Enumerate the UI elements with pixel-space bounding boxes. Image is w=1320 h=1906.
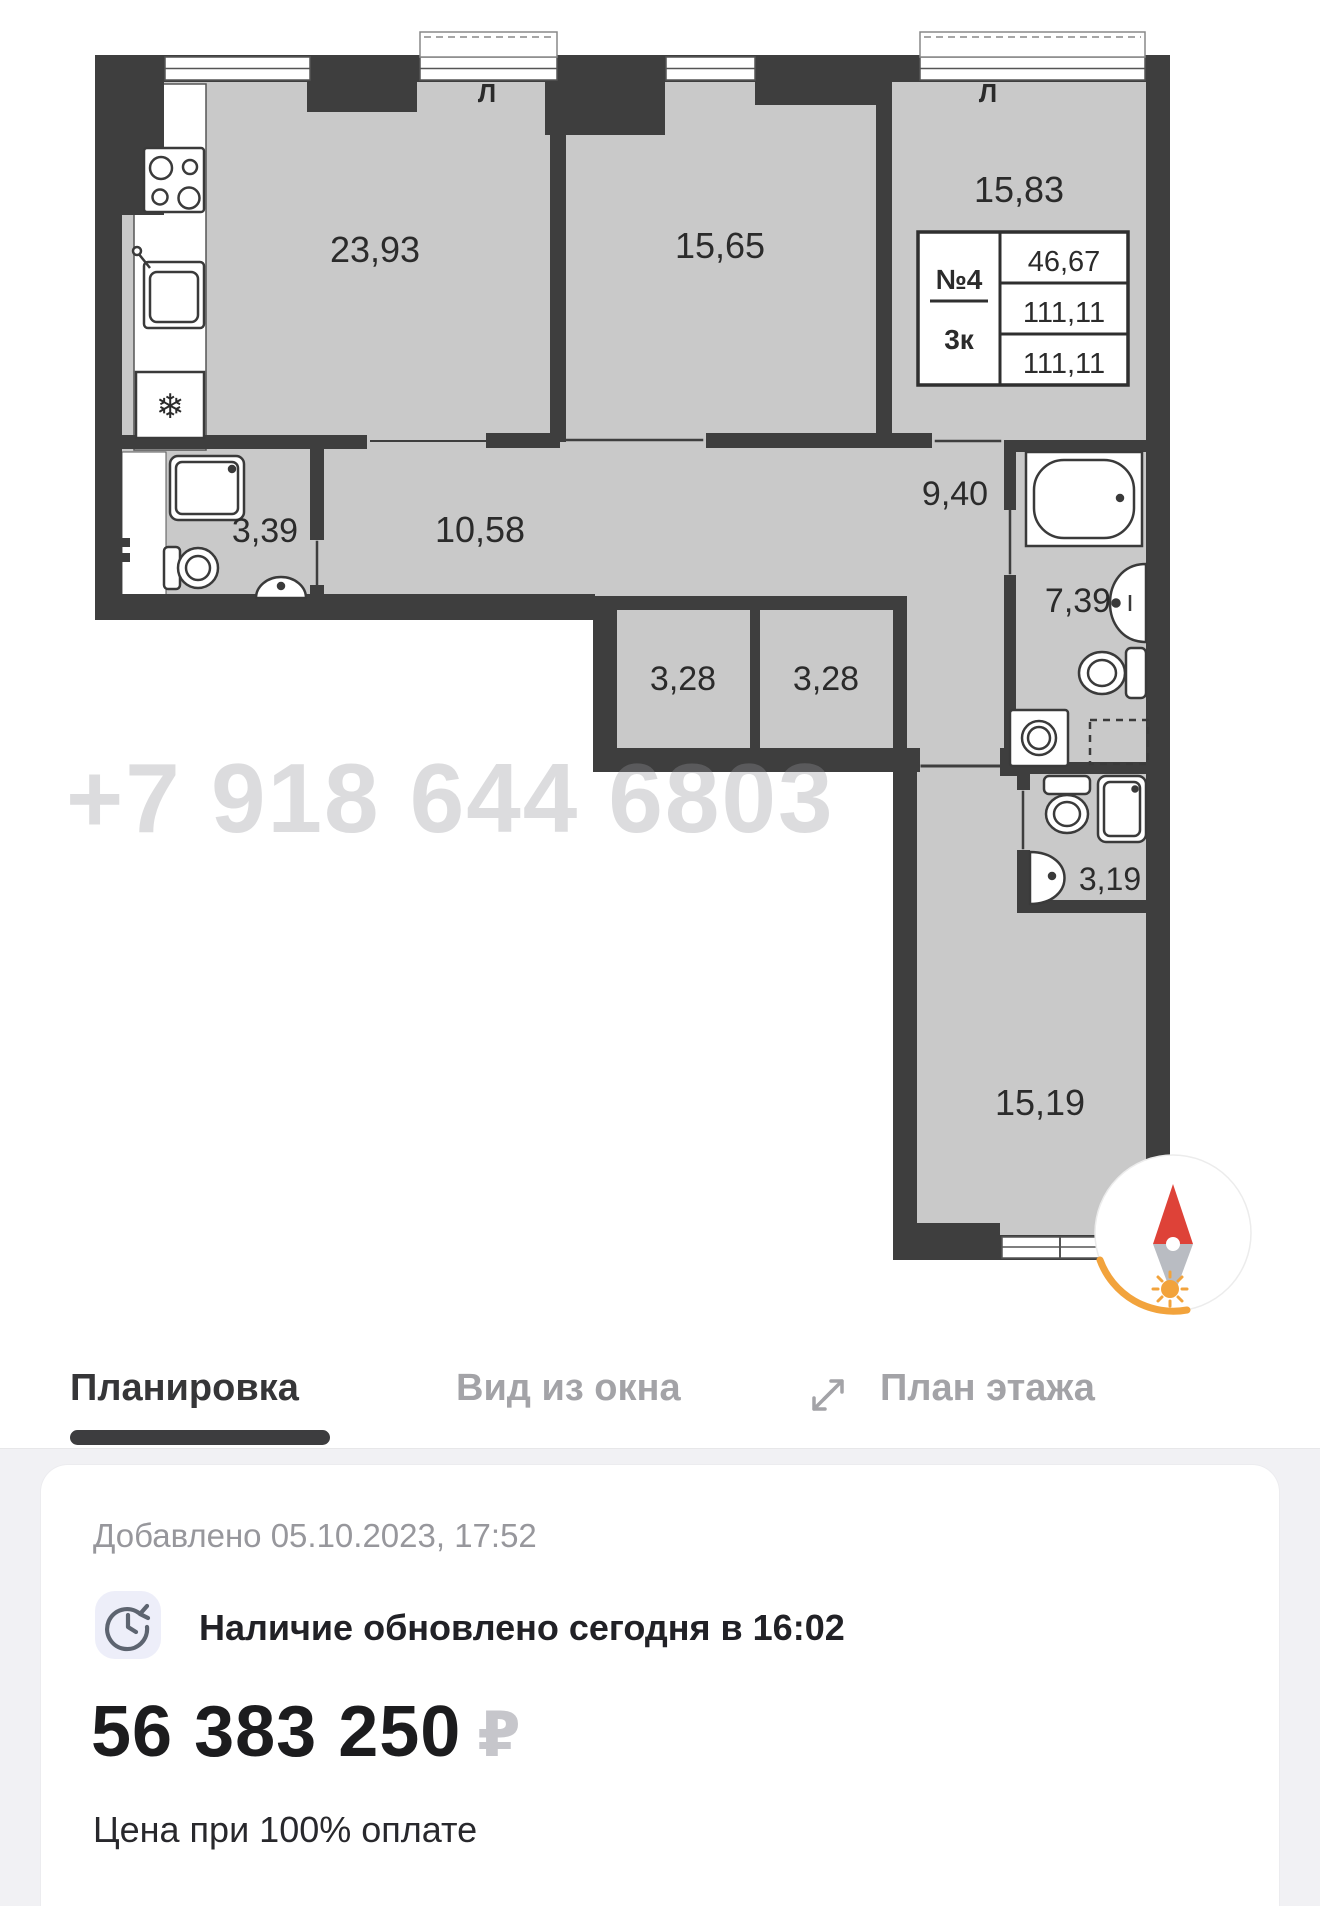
shower-icon xyxy=(170,456,244,520)
availability-updated-text: Наличие обновлено сегодня в 16:02 xyxy=(199,1607,845,1649)
room-label-hall: 10,58 xyxy=(435,509,525,550)
tab-floor-layout[interactable]: План этажа xyxy=(880,1367,1095,1410)
room-label-bedroom-mid: 15,65 xyxy=(675,225,765,266)
tab-bar: Планировка Вид из окна План этажа xyxy=(0,1345,1320,1449)
price: 56 383 250₽ xyxy=(91,1691,522,1773)
room-label-living: 23,93 xyxy=(330,229,420,270)
apartment-info-box: №4 3к 46,67 111,11 111,11 xyxy=(918,232,1128,385)
price-value: 56 383 250 xyxy=(91,1692,461,1772)
apartment-number: №4 xyxy=(936,264,983,295)
area-total: 111,11 xyxy=(1023,297,1105,329)
utility-shaft-strip xyxy=(122,452,166,598)
room-label-bath-small: 3,39 xyxy=(232,512,298,550)
area-total-2: 111,11 xyxy=(1023,348,1105,380)
active-tab-indicator xyxy=(70,1430,330,1445)
watermark-phone: +7 918 644 6803 xyxy=(66,742,1266,855)
floor-plan: Л Л xyxy=(0,0,1320,1350)
clock-refresh-icon xyxy=(95,1591,161,1659)
room-label-closet-left: 3,28 xyxy=(650,660,716,698)
room-label-corridor: 9,40 xyxy=(922,475,988,513)
freezer-snowflake-icon: ❄ xyxy=(156,388,185,426)
room-label-bathroom-main: 7,39 xyxy=(1045,582,1111,620)
details-card: Добавлено 05.10.2023, 17:52 Наличие обно… xyxy=(40,1464,1280,1906)
compass-icon xyxy=(1095,1155,1251,1311)
room-label-bedroom-lower: 15,19 xyxy=(995,1082,1085,1123)
added-date-text: Добавлено 05.10.2023, 17:52 xyxy=(93,1517,537,1555)
sun-icon xyxy=(1153,1272,1187,1306)
stove-icon xyxy=(144,148,204,212)
area-living: 46,67 xyxy=(1028,246,1101,278)
toilet-icon xyxy=(164,547,218,589)
ruble-sign: ₽ xyxy=(477,1701,521,1770)
room-label-bedroom-right: 15,83 xyxy=(974,169,1064,210)
apartment-rooms-type: 3к xyxy=(944,324,975,355)
room-label-bath-lower: 3,19 xyxy=(1079,861,1141,897)
listing-page: Л Л xyxy=(0,0,1320,1906)
balcony-ledges xyxy=(420,32,1145,57)
vent-mark-right: Л xyxy=(979,78,997,108)
availability-updated-icon xyxy=(95,1591,161,1659)
room-label-closet-right: 3,28 xyxy=(793,660,859,698)
toilet-icon xyxy=(1079,648,1146,698)
expand-arrows-icon[interactable] xyxy=(806,1373,850,1417)
vent-mark-left: Л xyxy=(478,78,496,108)
price-note: Цена при 100% оплате xyxy=(93,1809,477,1851)
tab-floor-plan[interactable]: Планировка xyxy=(70,1367,299,1410)
bathtub-icon xyxy=(1026,452,1142,546)
tab-window-view[interactable]: Вид из окна xyxy=(456,1367,681,1410)
